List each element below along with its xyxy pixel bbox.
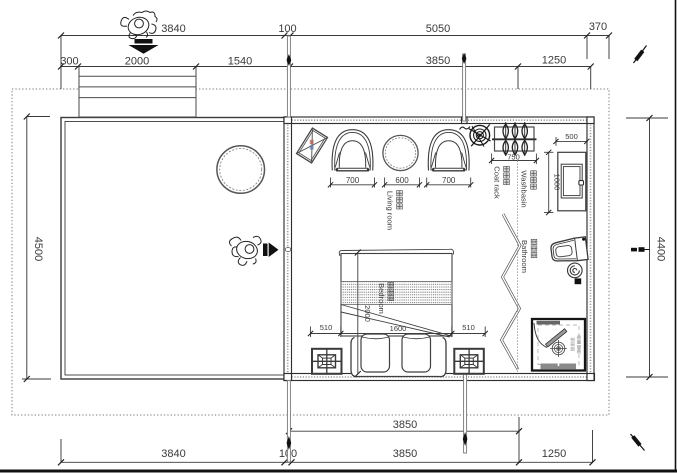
svg-text:4400: 4400 [655,237,667,261]
svg-text:2000: 2000 [125,56,149,68]
svg-text:510: 510 [320,323,333,332]
svg-text:1250: 1250 [542,448,566,460]
svg-text:2000: 2000 [363,305,372,322]
svg-text:5050: 5050 [426,23,450,35]
svg-text:1000: 1000 [553,174,562,191]
svg-text:510: 510 [462,323,475,332]
svg-text:4500: 4500 [32,237,44,261]
svg-text:3840: 3840 [161,23,185,35]
svg-text:100: 100 [278,23,296,35]
svg-text:Living room: Living room [386,191,395,230]
svg-text:3840: 3840 [161,448,185,460]
svg-text:700: 700 [346,176,360,185]
svg-text:1540: 1540 [228,56,252,68]
svg-text:Washbasin: Washbasin [520,170,529,207]
svg-text:370: 370 [589,21,607,33]
svg-text:3850: 3850 [393,419,417,431]
svg-text:500: 500 [565,132,578,141]
svg-text:1600: 1600 [390,324,407,333]
svg-text:3850: 3850 [393,448,417,460]
svg-text:Bathroom: Bathroom [520,240,529,273]
svg-text:Bedroom: Bedroom [377,283,386,314]
svg-text:1250: 1250 [542,55,566,67]
svg-text:300: 300 [60,56,78,68]
svg-text:600: 600 [395,176,409,185]
svg-text:Coat rack: Coat rack [493,166,502,199]
svg-text:750: 750 [507,153,520,162]
svg-text:700: 700 [442,176,456,185]
svg-text:3850: 3850 [426,55,450,67]
